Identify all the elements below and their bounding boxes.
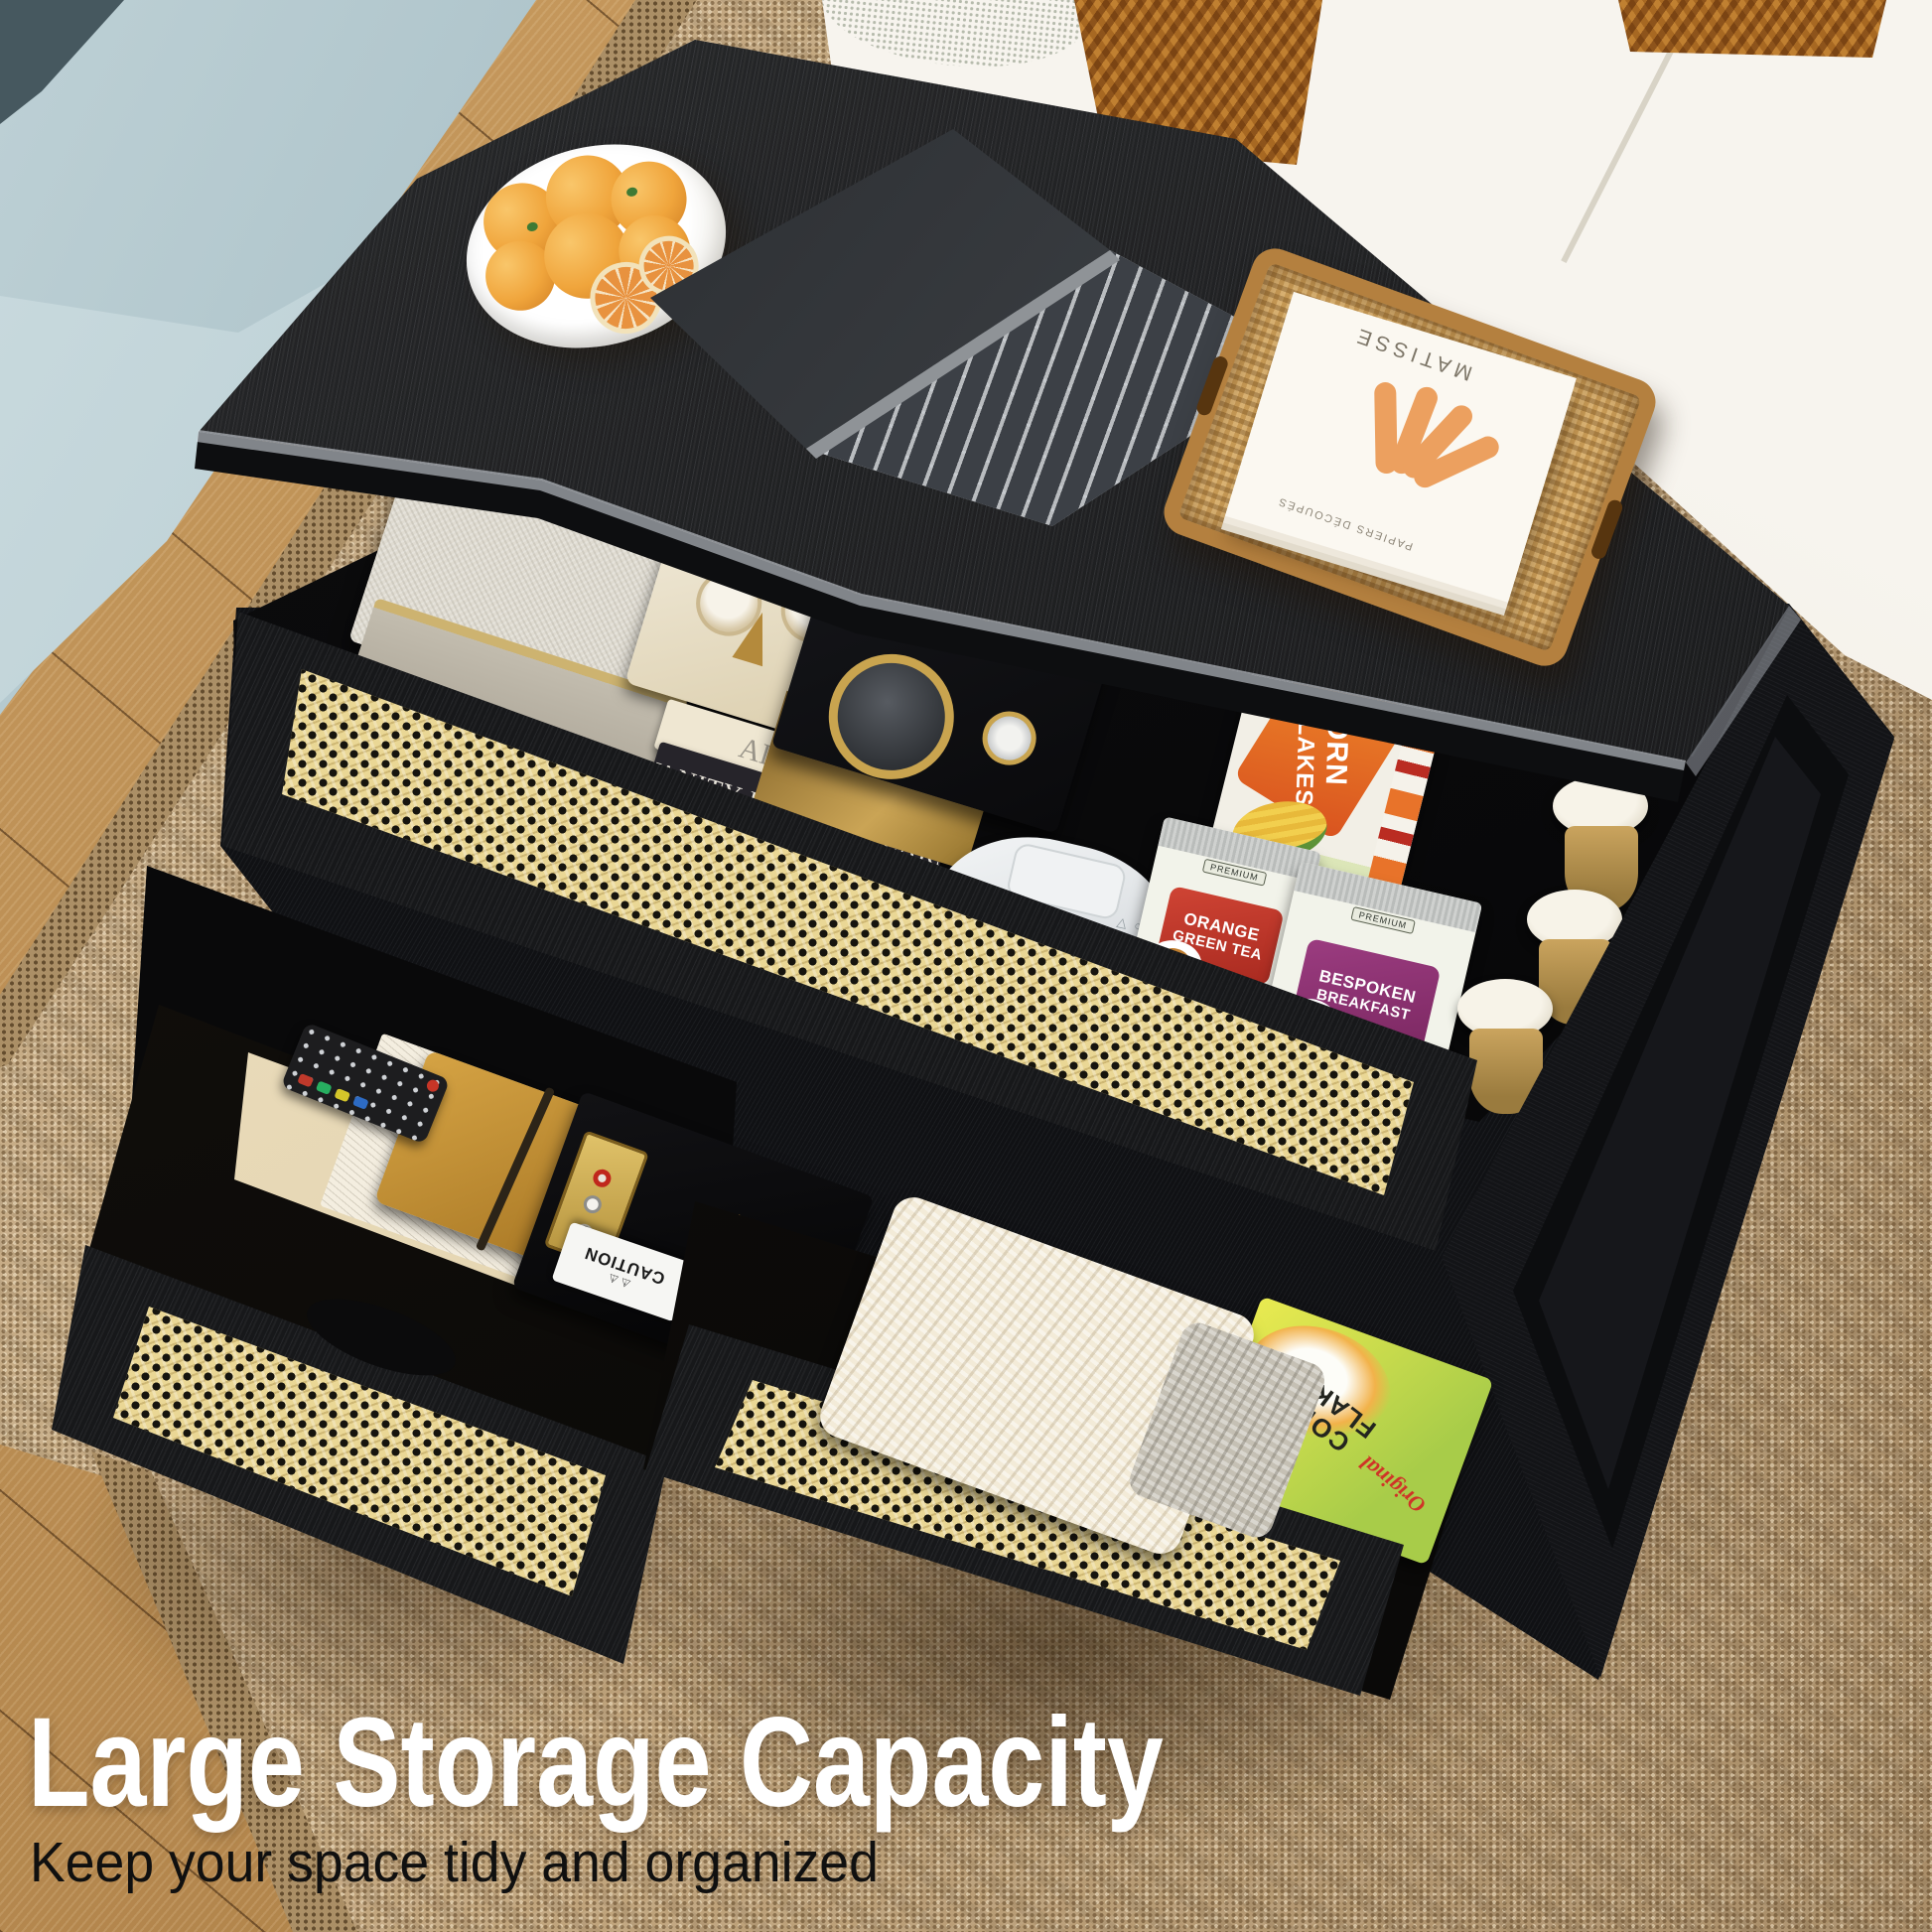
product-photo-scene: AD at 100 VANITY FAIR 100 YEARS AD at 10… — [0, 0, 1932, 1932]
color-button — [334, 1088, 350, 1103]
color-button — [297, 1073, 314, 1088]
overlay-subheading: Keep your space tidy and organized — [30, 1835, 879, 1891]
rca-jack-icon — [581, 1193, 604, 1216]
overlay-heading: Large Storage Capacity — [28, 1700, 1164, 1827]
power-button-icon — [425, 1078, 441, 1094]
color-button — [316, 1080, 333, 1095]
dial — [976, 705, 1042, 771]
rca-jack-icon — [591, 1167, 614, 1189]
color-button — [352, 1095, 369, 1110]
cereal-variant: Original — [1355, 1450, 1431, 1519]
